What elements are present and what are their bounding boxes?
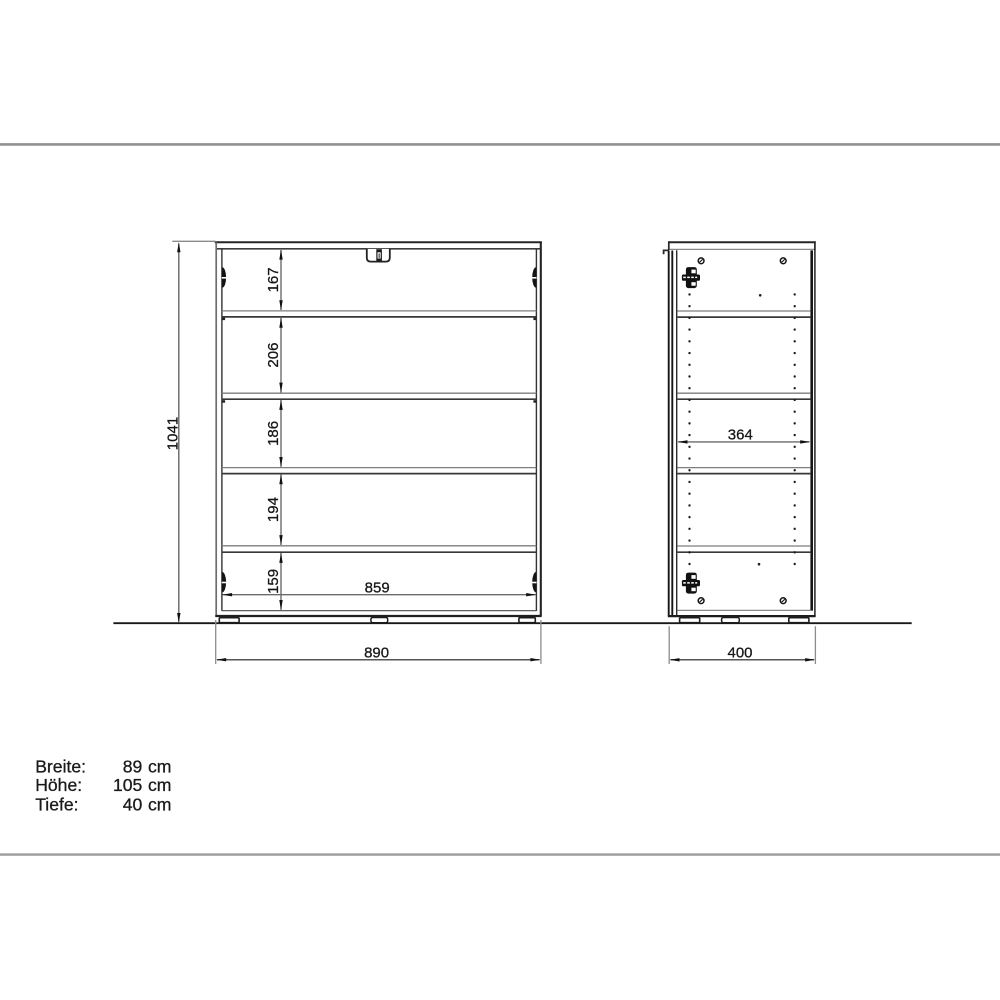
svg-text:Tiefe:: Tiefe: — [35, 794, 78, 814]
svg-text:1041: 1041 — [165, 417, 182, 450]
svg-text:40: 40 — [123, 794, 143, 814]
svg-text:206: 206 — [265, 343, 282, 368]
svg-text:400: 400 — [727, 645, 752, 662]
svg-text:105: 105 — [113, 775, 143, 795]
svg-text:859: 859 — [365, 579, 390, 596]
svg-text:890: 890 — [364, 645, 389, 662]
svg-text:186: 186 — [265, 421, 282, 446]
svg-text:167: 167 — [265, 267, 282, 292]
svg-text:194: 194 — [265, 497, 282, 522]
svg-text:cm: cm — [148, 757, 171, 777]
svg-text:Breite:: Breite: — [35, 757, 86, 777]
svg-text:89: 89 — [123, 757, 143, 777]
svg-text:cm: cm — [148, 794, 171, 814]
svg-text:Höhe:: Höhe: — [35, 775, 82, 795]
svg-text:cm: cm — [148, 775, 171, 795]
svg-text:159: 159 — [265, 569, 282, 594]
svg-text:364: 364 — [728, 426, 753, 443]
